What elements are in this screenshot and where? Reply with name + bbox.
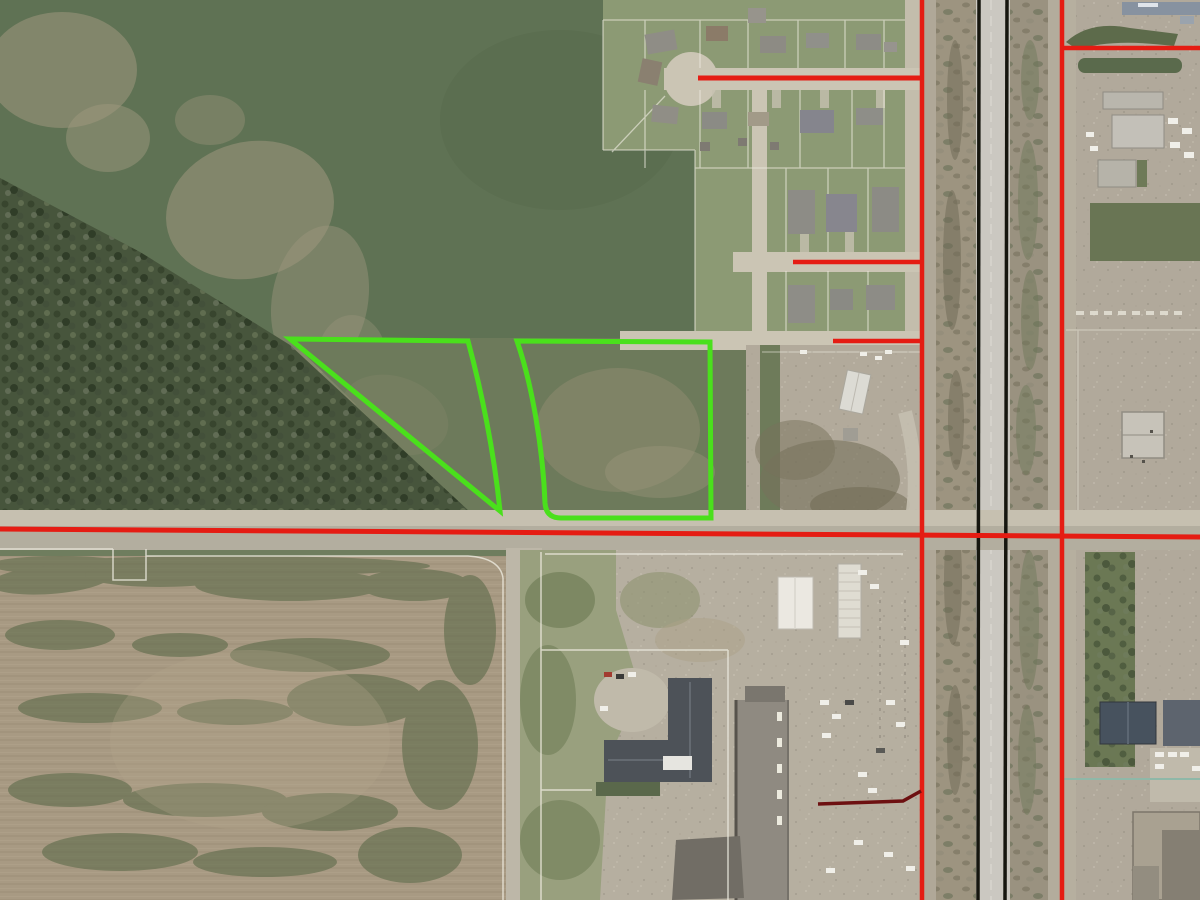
building [748,112,769,126]
building [1163,700,1200,746]
satellite-imagery-layer [0,0,1200,900]
building [651,105,679,125]
building [706,26,728,41]
plowed-field [0,556,506,900]
railway-line-west [978,0,979,900]
building [826,194,857,232]
railway-line-east [1005,0,1007,900]
building [806,33,829,48]
building [702,112,727,129]
building [866,285,895,310]
map-canvas [0,0,1200,900]
building [800,110,834,133]
building [856,108,883,125]
highway-corridor [922,0,1062,900]
building [830,289,853,310]
building [760,36,786,53]
building [872,187,899,232]
building [1103,92,1163,109]
east-commercial-zone [1062,0,1200,900]
industrial-structure [1122,2,1200,15]
commercial-yard-west [746,345,922,523]
building [788,190,815,234]
building [788,285,815,323]
building [748,8,766,23]
building [1098,160,1136,187]
building [884,42,897,52]
aerial-parcel-map[interactable] [0,0,1200,900]
building [856,34,881,50]
commercial-block-south [520,550,922,900]
building [843,428,858,441]
building [1112,115,1164,148]
